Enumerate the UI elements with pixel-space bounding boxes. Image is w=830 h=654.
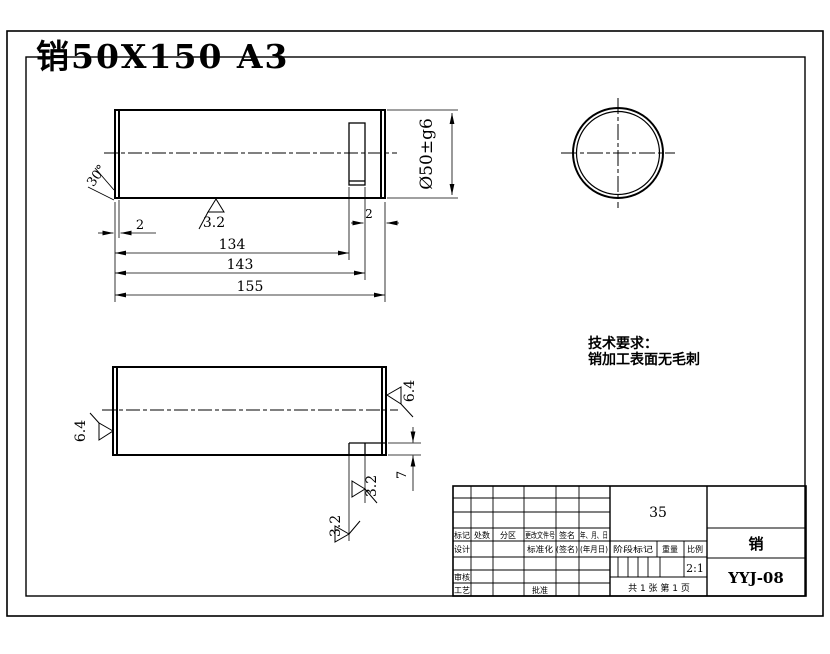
row-process: 工艺: [454, 586, 470, 595]
inner-border: [26, 57, 805, 596]
weight-label: 重量: [662, 544, 678, 554]
bottom-view: 6.4 6.4 3.2 3.2 7: [73, 367, 421, 542]
roughness-symbol-left: [90, 413, 113, 440]
technical-requirements: 技术要求： 销加工表面无毛刺: [588, 335, 700, 368]
top-view-outline: [115, 110, 385, 198]
row-standardization: 标准化: [527, 544, 553, 554]
roughness-value-top: 3.2: [203, 215, 225, 231]
material-value: 35: [649, 505, 667, 521]
title-block: 标记 处数 分区 更改文件号 签名 年、月、日 设计 标准化 (签名) (年月日…: [453, 486, 806, 596]
cad-drawing: 销50X150 A3 3.2 30°: [0, 0, 830, 654]
part-name: 销: [748, 535, 763, 553]
dim-134: 134: [219, 237, 246, 253]
header-change-doc: 更改文件号: [525, 530, 555, 540]
drawing-number: YYJ-08: [727, 569, 784, 587]
row-date-paren: (年月日): [580, 544, 608, 554]
top-view-groove: [349, 123, 365, 185]
page-borders: [7, 31, 823, 616]
roughness-value-left: 6.4: [73, 420, 89, 442]
top-view: 3.2 30° 2 2 134: [84, 110, 458, 302]
scale-label: 比例: [687, 544, 703, 554]
dim-groove-2: 2: [365, 207, 373, 221]
dim-155: 155: [237, 279, 264, 295]
row-sig-paren: (签名): [556, 544, 578, 554]
tech-req-heading: 技术要求：: [588, 335, 658, 352]
tech-req-text: 销加工表面无毛刺: [588, 351, 700, 368]
header-count: 处数: [474, 530, 490, 540]
chamfer-angle-value: 30°: [84, 162, 110, 189]
header-signature: 签名: [559, 530, 575, 540]
row-approve: 批准: [532, 585, 548, 595]
scale-value: 2:1: [686, 562, 704, 575]
header-zone: 分区: [500, 531, 516, 540]
outer-border: [7, 31, 823, 616]
roughness-value-groove-b: 3.2: [328, 515, 344, 537]
dim-7: 7: [395, 471, 410, 479]
bottom-view-groove: [349, 443, 386, 455]
sheet-info: 共 1 张 第 1 页: [628, 582, 690, 594]
dim-chamfer-2: 2: [136, 218, 144, 233]
dim-diameter: Ø50±g6: [417, 118, 437, 190]
title-block-headers: 标记 处数 分区 更改文件号 签名 年、月、日: [454, 530, 608, 540]
stage-mark-label: 阶段标记: [613, 544, 653, 554]
header-date: 年、月、日: [580, 530, 608, 540]
row-check: 审核: [454, 572, 470, 582]
title-block-stage-row: 阶段标记 重量 比例: [613, 544, 703, 554]
title-block-sign-rows: 设计 标准化 (签名) (年月日) 审核 工艺 批准: [454, 544, 608, 595]
dim-143: 143: [227, 257, 254, 273]
roughness-value-right: 6.4: [402, 380, 418, 402]
roughness-value-groove-a: 3.2: [364, 475, 380, 497]
drawing-canvas: 销50X150 A3 3.2 30°: [0, 0, 830, 654]
row-design: 设计: [454, 544, 470, 554]
end-view: [561, 98, 675, 208]
header-mark: 标记: [454, 530, 470, 540]
drawing-title: 销50X150 A3: [36, 37, 289, 76]
bottom-view-outline: [113, 367, 386, 455]
